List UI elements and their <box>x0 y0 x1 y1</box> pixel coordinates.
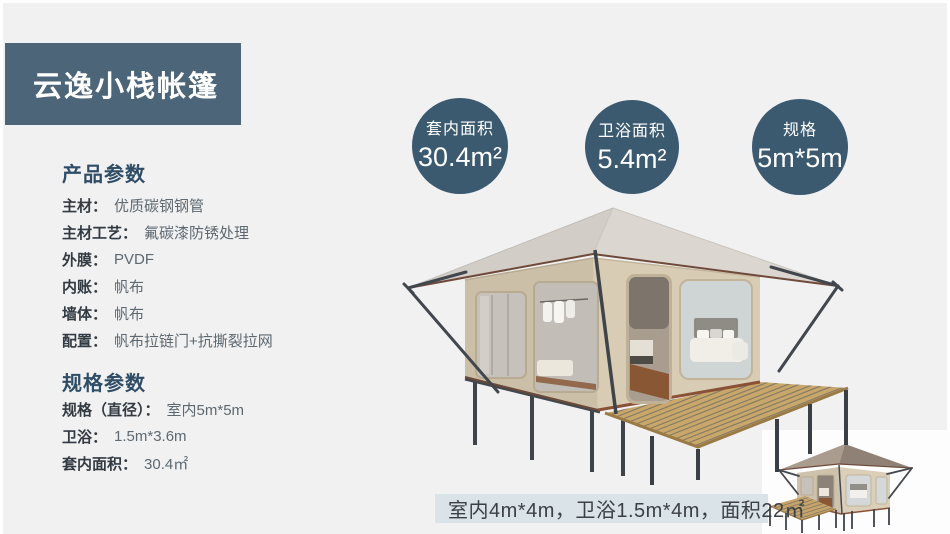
product-params-list: 主材： 优质碳钢钢管 主材工艺： 氟碳漆防锈处理 外膜： PVDF 内账： 帆布… <box>62 192 402 354</box>
param-row: 内账： 帆布 <box>62 273 402 300</box>
param-row: 套内面积： 30.4㎡ <box>62 450 402 477</box>
page-title: 云逸小栈帐篷 <box>33 63 219 105</box>
stat-label: 规格 <box>783 121 817 141</box>
stat-value: 30.4m² <box>418 142 502 172</box>
slide: 云逸小栈帐篷 产品参数 主材： 优质碳钢钢管 主材工艺： 氟碳漆防锈处理 外膜：… <box>0 0 950 534</box>
param-value: 帆布 <box>114 276 144 297</box>
parameters-panel: 产品参数 主材： 优质碳钢钢管 主材工艺： 氟碳漆防锈处理 外膜： PVDF 内… <box>62 163 402 477</box>
param-label: 外膜： <box>62 249 107 270</box>
param-label: 卫浴： <box>62 426 107 447</box>
param-value: 1.5m*3.6m <box>114 428 187 445</box>
section-heading-product-params: 产品参数 <box>62 163 402 187</box>
param-label: 内账： <box>62 276 107 297</box>
param-value: 氟碳漆防锈处理 <box>144 222 249 243</box>
stat-value: 5m*5m <box>757 143 843 173</box>
stat-value: 5.4m² <box>597 144 666 174</box>
param-row: 规格（直径）： 室内5m*5m <box>62 396 402 423</box>
param-label: 主材： <box>62 195 107 216</box>
param-row: 墙体： 帆布 <box>62 300 402 327</box>
stat-circle-indoor-area: 套内面积 30.4m² <box>412 98 508 194</box>
stat-label: 卫浴面积 <box>598 122 666 142</box>
param-row: 卫浴： 1.5m*3.6m <box>62 423 402 450</box>
param-label: 配置： <box>62 330 107 351</box>
param-value: 帆布 <box>114 303 144 324</box>
spec-params-list: 规格（直径）： 室内5m*5m 卫浴： 1.5m*3.6m 套内面积： 30.4… <box>62 396 402 477</box>
param-row: 主材工艺： 氟碳漆防锈处理 <box>62 219 402 246</box>
stat-circle-size: 规格 5m*5m <box>752 99 848 195</box>
param-value: 30.4㎡ <box>144 453 188 474</box>
param-row: 主材： 优质碳钢钢管 <box>62 192 402 219</box>
param-label: 规格（直径）： <box>62 399 160 420</box>
param-value: PVDF <box>114 251 154 268</box>
stat-circle-bathroom-area: 卫浴面积 5.4m² <box>585 100 679 194</box>
param-row: 配置： 帆布拉链门+抗撕裂拉网 <box>62 327 402 354</box>
param-label: 墙体： <box>62 303 107 324</box>
param-label: 主材工艺： <box>62 222 137 243</box>
title-block: 云逸小栈帐篷 <box>5 43 241 125</box>
param-value: 帆布拉链门+抗撕裂拉网 <box>114 330 273 351</box>
param-label: 套内面积： <box>62 453 137 474</box>
section-heading-spec-params: 规格参数 <box>62 372 402 396</box>
caption-text: 室内4m*4m，卫浴1.5m*4m，面积22㎡ <box>448 494 805 523</box>
param-value: 室内5m*5m <box>167 399 245 420</box>
param-row: 外膜： PVDF <box>62 246 402 273</box>
param-value: 优质碳钢钢管 <box>114 195 204 216</box>
caption-bar: 室内4m*4m，卫浴1.5m*4m，面积22㎡ <box>435 494 768 523</box>
stat-label: 套内面积 <box>426 120 494 140</box>
main-tent-image <box>380 192 900 502</box>
